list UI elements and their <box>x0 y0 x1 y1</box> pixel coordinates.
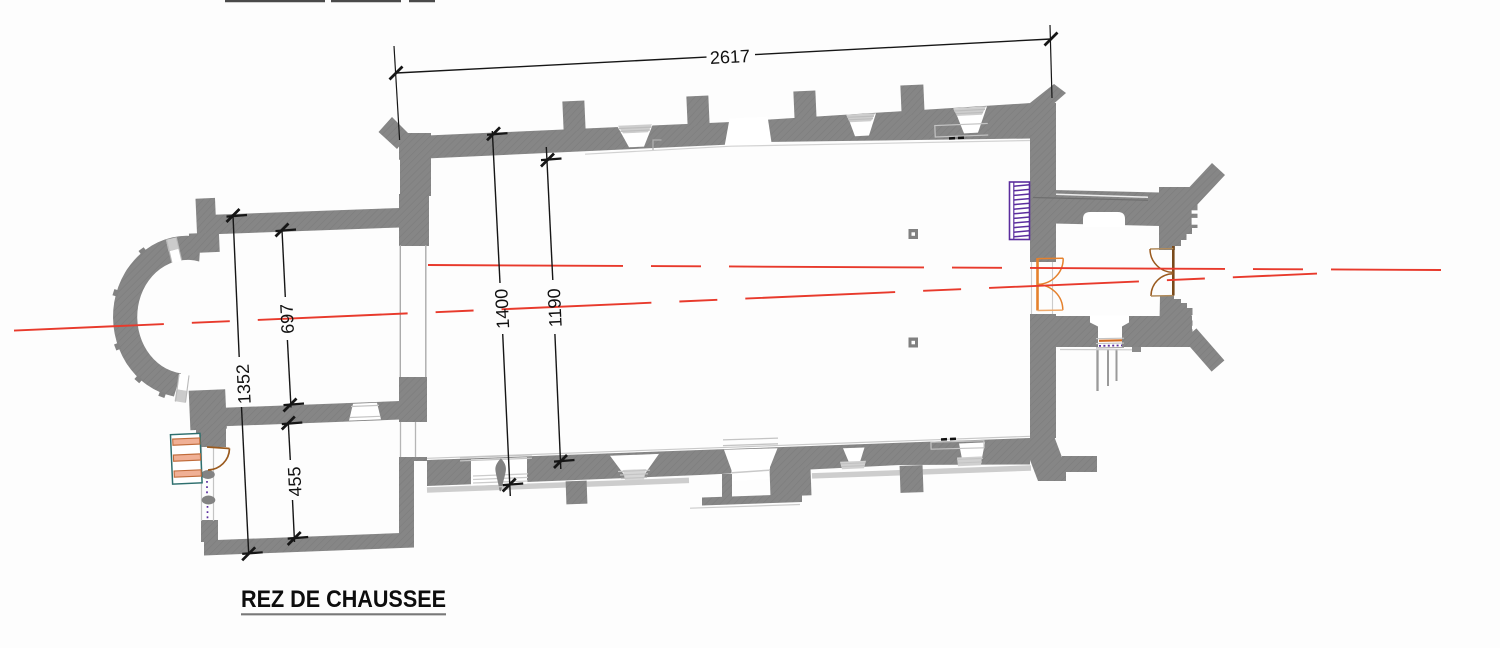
svg-text:1190: 1190 <box>544 288 566 328</box>
svg-text:1400: 1400 <box>491 288 513 329</box>
svg-text:REZ DE CHAUSSEE: REZ DE CHAUSSEE <box>241 586 446 613</box>
svg-text:1352: 1352 <box>233 363 255 404</box>
svg-text:2617: 2617 <box>709 46 750 68</box>
svg-text:697: 697 <box>276 303 297 334</box>
svg-text:455: 455 <box>284 466 305 497</box>
